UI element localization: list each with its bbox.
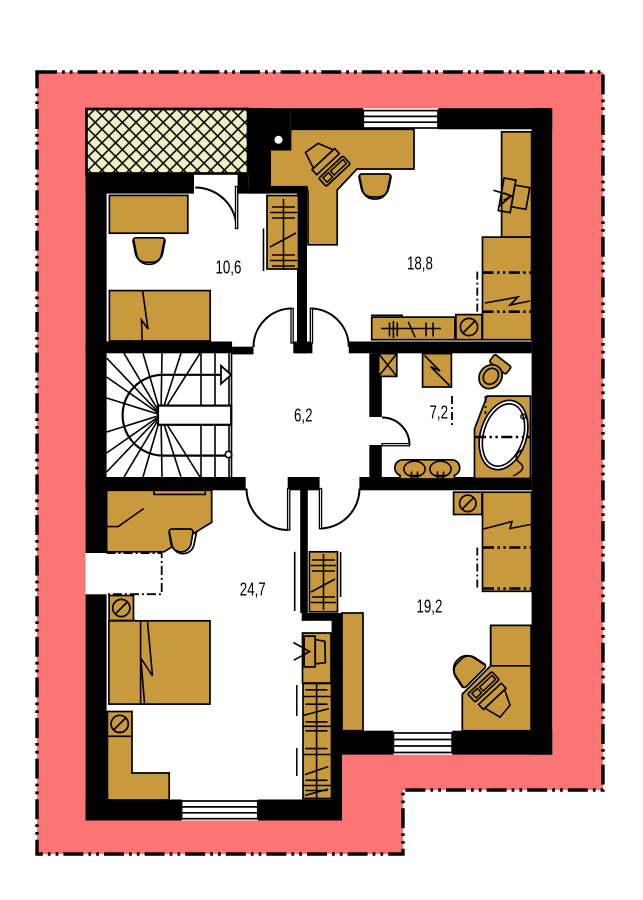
svg-text:10,6: 10,6 — [216, 257, 242, 278]
svg-text:24,7: 24,7 — [240, 579, 266, 600]
svg-text:7,2: 7,2 — [430, 402, 449, 423]
svg-text:18,8: 18,8 — [407, 253, 433, 274]
svg-text:19,2: 19,2 — [417, 596, 443, 617]
svg-text:6,2: 6,2 — [294, 405, 313, 426]
